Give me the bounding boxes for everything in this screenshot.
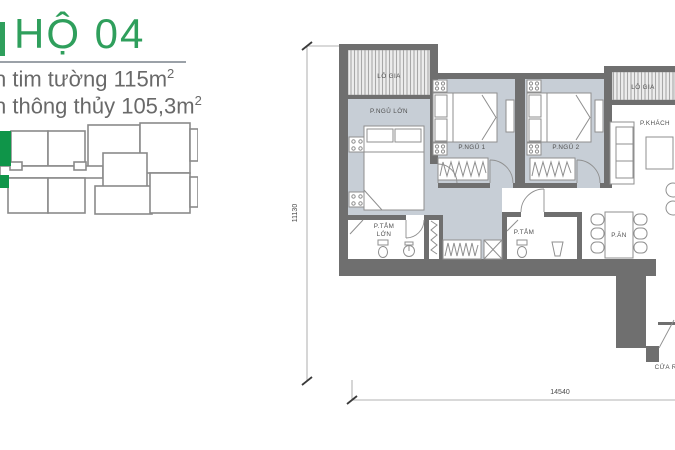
- shaft-hatch: [431, 221, 437, 254]
- coffee-table: [646, 137, 675, 215]
- label-loggia-left: LÔ GIA: [377, 71, 401, 80]
- area-thong-thuy: n thông thủy 105,3m2: [0, 93, 202, 119]
- label-living-room: P.KHÁCH: [640, 118, 670, 127]
- keyplan-outline: [0, 123, 198, 214]
- title-underline: [0, 61, 186, 63]
- area-tim-tuong-sup: 2: [167, 66, 174, 81]
- dimension-vertical: 11130: [292, 42, 339, 385]
- building-keyplan: [0, 121, 198, 217]
- label-entrance: CỬA RA: [655, 362, 675, 371]
- dimension-horizontal: 14540: [347, 380, 675, 404]
- hall-wardrobe: [443, 240, 481, 259]
- area-thong-thuy-text: n thông thủy 105,3m: [0, 93, 195, 118]
- dim-height: 11130: [292, 204, 299, 223]
- bath2-fixtures: [507, 220, 563, 258]
- label-bedroom-2: P.NGỦ 2: [552, 142, 579, 151]
- label-bath: P.TẮM: [514, 227, 534, 236]
- unit-title: HỘ 04: [14, 10, 145, 58]
- label-loggia-right: LÔ GIA: [631, 82, 655, 91]
- label-master-bath-2: LỚN: [377, 229, 392, 238]
- sofa: [610, 122, 634, 184]
- area-thong-thuy-sup: 2: [195, 93, 202, 108]
- label-master-bedroom: P.NGỦ LỚN: [370, 106, 408, 115]
- title-cut-letter: [0, 22, 5, 56]
- label-master-bath-1: P.TẮM: [374, 221, 394, 230]
- label-bedroom-1: P.NGỦ 1: [458, 142, 485, 151]
- area-tim-tuong: n tim tường 115m2: [0, 66, 174, 92]
- dim-width: 14540: [550, 389, 570, 396]
- washing-machine: [484, 240, 502, 259]
- floorplan-page: HỘ 04 n tim tường 115m2 n thông thủy 105…: [0, 0, 675, 450]
- floor-plan: LÔ GIA LÔ GIA P.NGỦ LỚN P.NGỦ 1 P.NGỦ 2 …: [278, 30, 675, 420]
- label-dining-room: P.ĂN: [611, 230, 627, 239]
- area-tim-tuong-text: n tim tường 115m: [0, 66, 167, 91]
